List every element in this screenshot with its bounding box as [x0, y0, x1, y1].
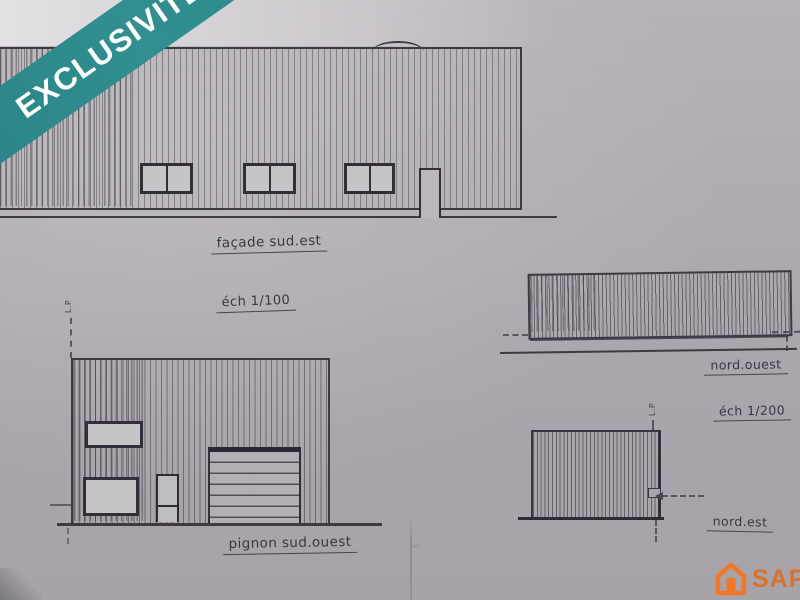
pignon-property-line-dash — [70, 318, 72, 358]
nord-ouest-scale-text: éch 1/200 — [713, 402, 791, 421]
pignon-ground-line — [57, 523, 382, 526]
facade-door — [419, 168, 441, 218]
agency-logo-text: SAFTI — [752, 565, 800, 594]
door-panel-line — [158, 505, 177, 507]
facade-window-1 — [140, 163, 193, 194]
corner-fold-shadow — [0, 568, 42, 600]
nord-ouest-ground-line — [500, 348, 797, 354]
nord-ouest-caption: nord.ouest — [700, 356, 792, 376]
nord-est-caption-text: nord.est — [706, 513, 773, 532]
nord-est-dash-bottom — [655, 520, 657, 542]
photo-of-elevation-plans: façade sud.est éch 1/100 L.P pignon sud.… — [0, 0, 800, 600]
nord-ouest-dash-left — [503, 334, 528, 336]
nord-est-dash-arrow — [662, 495, 704, 497]
facade-caption: façade sud.est — [204, 232, 334, 254]
nord-ouest-wall-shaded-left — [531, 275, 600, 332]
pignon-left-tick — [50, 504, 72, 506]
pignon-caption-text: pignon sud.ouest — [222, 534, 357, 555]
nord-ouest-dash-right — [772, 331, 800, 333]
nord-est-ground-line — [518, 517, 664, 520]
pignon-door — [156, 474, 179, 522]
nord-est-dash-top — [652, 420, 654, 430]
pignon-property-line-label: L.P — [64, 300, 73, 313]
facade-window-3 — [344, 163, 395, 194]
paper-crease — [410, 518, 412, 600]
window-mullion — [166, 166, 168, 191]
pignon-ground-tick-below — [67, 528, 71, 544]
window-mullion — [269, 166, 271, 191]
window-mullion — [369, 166, 371, 191]
agency-logo: SAFTI — [714, 560, 800, 598]
nord-est-caption: nord.est — [700, 513, 780, 533]
pignon-window-lower — [83, 477, 139, 516]
nord-est-arrowhead — [655, 492, 663, 500]
facade-ground-line — [0, 216, 557, 218]
pignon-garage-door — [208, 447, 301, 526]
safti-house-icon — [714, 561, 748, 597]
facade-window-2 — [243, 163, 296, 194]
nord-ouest-scale-label: éch 1/200 — [706, 402, 798, 422]
pignon-caption: pignon sud.ouest — [222, 534, 358, 555]
facade-base-line — [0, 208, 520, 210]
faint-scribble: ᠁ — [410, 539, 420, 552]
facade-scale-text: éch 1/100 — [215, 293, 296, 314]
facade-scale-label: éch 1/100 — [208, 292, 305, 313]
nord-est-wall — [531, 430, 661, 520]
pignon-window-upper — [85, 421, 143, 448]
nord-ouest-caption-text: nord.ouest — [704, 356, 787, 375]
facade-caption-text: façade sud.est — [210, 232, 327, 254]
nord-est-property-line-label: L.P — [648, 403, 657, 416]
